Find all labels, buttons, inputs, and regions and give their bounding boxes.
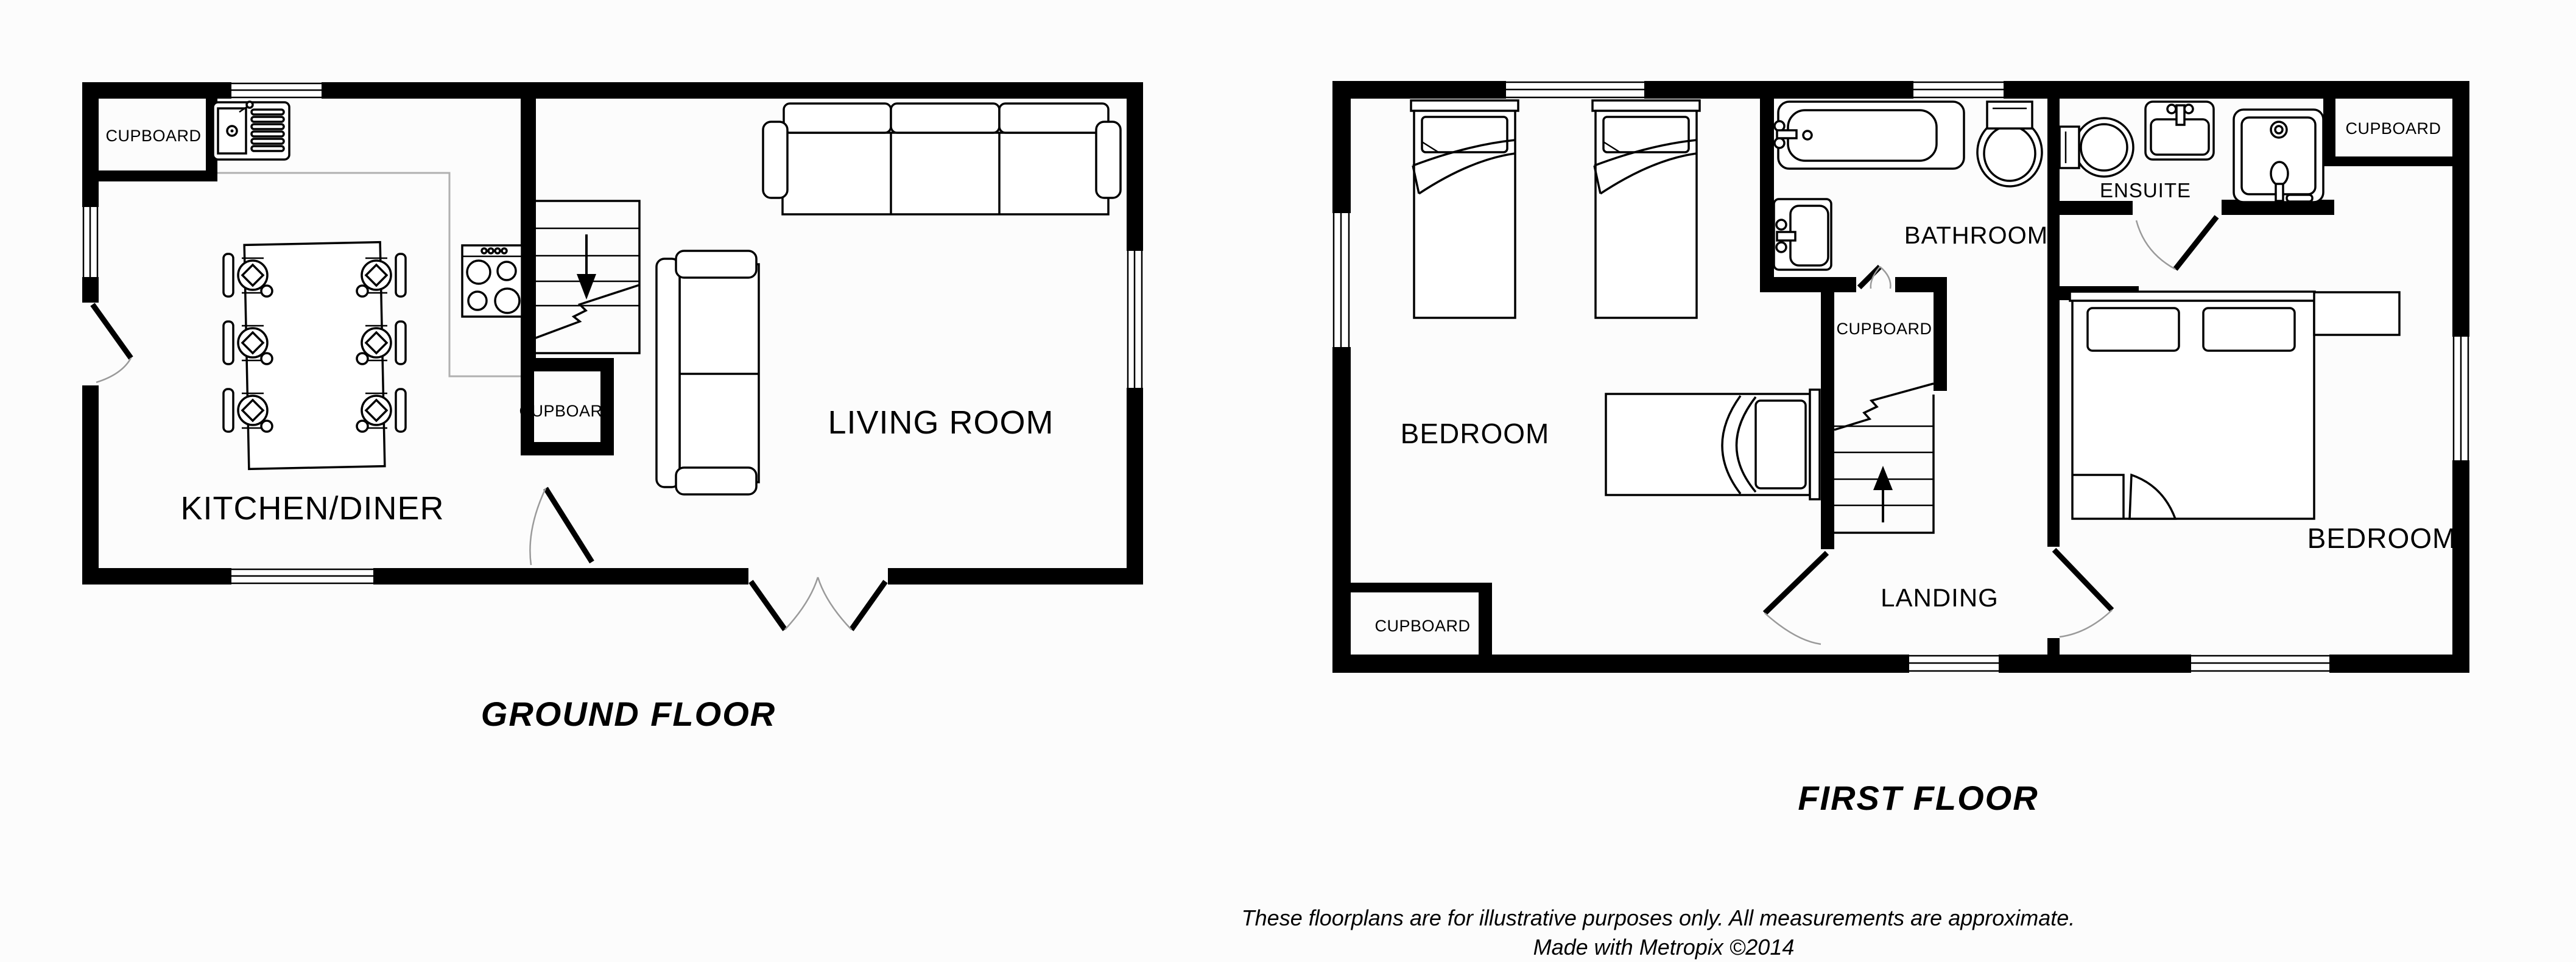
label-cupboard-middle-ground: CUPBOARD xyxy=(519,402,614,420)
dining-table-set xyxy=(223,242,406,469)
window-kitchen-top xyxy=(231,82,322,99)
settee xyxy=(656,251,759,494)
ground-floor-title: GROUND FLOOR xyxy=(481,695,776,733)
label-bedroom-right: BEDROOM xyxy=(2307,522,2457,554)
window-kitchen-bottom xyxy=(231,568,373,585)
footer: These floorplans are for illustrative pu… xyxy=(1242,905,2075,960)
first-floor-title: FIRST FLOOR xyxy=(1798,779,2038,817)
door-kitchen-side xyxy=(93,304,131,382)
hand-basin xyxy=(1774,199,1831,270)
door-bedroom-right xyxy=(2054,550,2112,637)
label-bedroom-left: BEDROOM xyxy=(1401,418,1550,449)
window-living-right xyxy=(1127,251,1143,388)
window-bathroom-top xyxy=(1913,81,2004,99)
stairs-ground xyxy=(534,201,639,353)
window-kitchen-left xyxy=(82,207,99,277)
label-cupboard-middle-first: CUPBOARD xyxy=(1836,320,1932,338)
label-bathroom: BATHROOM xyxy=(1904,222,2048,249)
label-living-room: LIVING ROOM xyxy=(828,404,1054,441)
footer-disclaimer: These floorplans are for illustrative pu… xyxy=(1242,905,2075,930)
floorplan-image: CUPBOARD KITCHEN/DINER CUPBOARD LIVING R… xyxy=(0,0,2576,962)
window-bedroom-right-side xyxy=(2452,337,2469,460)
door-ensuite xyxy=(2136,217,2217,269)
double-bed xyxy=(2070,292,2399,519)
toilet xyxy=(1977,102,2042,186)
door-kitchen-living xyxy=(530,488,592,565)
wash-basin xyxy=(2145,102,2214,160)
single-bed xyxy=(1411,100,1518,318)
door-french-doors xyxy=(751,577,885,630)
footer-credit: Made with Metropix ©2014 xyxy=(1533,935,1795,960)
door-bedroom-left xyxy=(1765,553,1827,644)
label-cupboard-bottom-left: CUPBOARD xyxy=(1374,617,1470,635)
window-bedroom-left-side xyxy=(1332,213,1351,347)
toilet xyxy=(2060,118,2133,177)
stove xyxy=(462,245,522,317)
label-cupboard-top-left: CUPBOARD xyxy=(105,127,201,145)
stairs-down-arrow xyxy=(577,234,596,300)
label-cupboard-top-right: CUPBOARD xyxy=(2345,119,2441,138)
window-landing-bottom xyxy=(1909,655,1999,673)
label-kitchen-diner: KITCHEN/DINER xyxy=(180,490,444,527)
stairs-up-arrow xyxy=(1873,466,1893,522)
single-bed xyxy=(1606,390,1820,499)
window-bedroom-left-top xyxy=(1506,81,1644,99)
window-bedroom-right-bottom xyxy=(2191,655,2329,673)
stairs-first xyxy=(1834,384,1934,533)
single-bed xyxy=(1592,100,1700,318)
kitchen-sink xyxy=(213,102,289,160)
door-bathroom xyxy=(1859,267,1890,289)
sofa xyxy=(763,104,1121,214)
ground-floor-plan: CUPBOARD KITCHEN/DINER CUPBOARD LIVING R… xyxy=(82,82,1143,733)
shower xyxy=(2234,110,2323,202)
bathtub xyxy=(1775,102,1964,169)
first-floor-plan: BEDROOM BEDROOM BATHROOM ENSUITE LANDING… xyxy=(1332,81,2469,817)
label-landing: LANDING xyxy=(1881,583,1999,612)
label-ensuite: ENSUITE xyxy=(2100,179,2191,202)
